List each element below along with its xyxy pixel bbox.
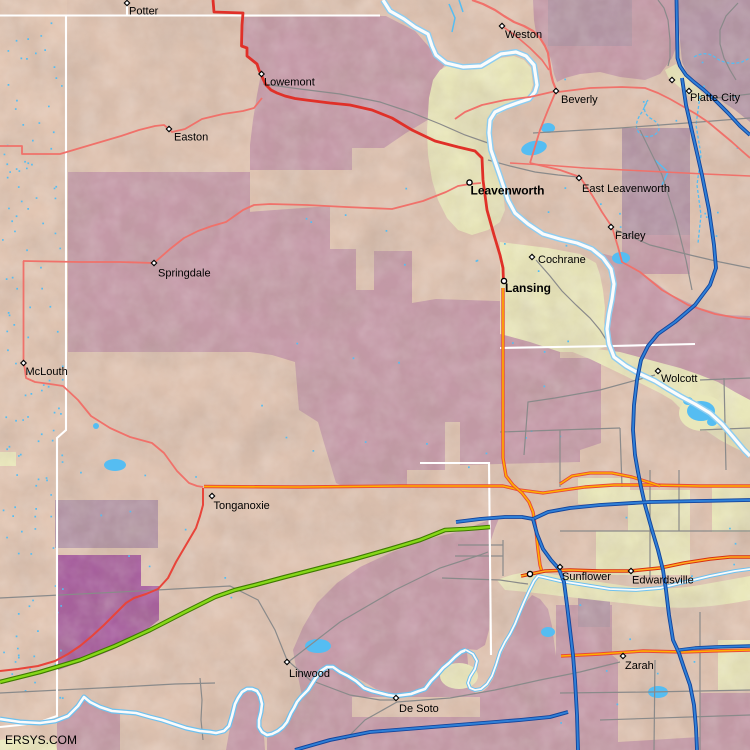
svg-text:Edwardsville: Edwardsville xyxy=(632,575,694,587)
svg-text:De Soto: De Soto xyxy=(399,703,439,715)
svg-text:ERSYS.COM: ERSYS.COM xyxy=(5,733,77,747)
svg-text:Springdale: Springdale xyxy=(158,268,211,280)
svg-text:Sunflower: Sunflower xyxy=(562,571,611,583)
svg-text:Lowemont: Lowemont xyxy=(264,77,315,89)
svg-text:Linwood: Linwood xyxy=(289,668,330,680)
svg-text:Farley: Farley xyxy=(615,230,646,242)
svg-text:McLouth: McLouth xyxy=(26,366,68,378)
svg-text:Potter: Potter xyxy=(129,6,159,18)
svg-text:Cochrane: Cochrane xyxy=(538,254,586,266)
svg-text:East Leavenworth: East Leavenworth xyxy=(582,183,670,195)
svg-text:Tonganoxie: Tonganoxie xyxy=(214,500,270,512)
svg-text:Leavenworth: Leavenworth xyxy=(471,184,545,198)
svg-text:Lansing: Lansing xyxy=(505,281,551,295)
svg-text:Wolcott: Wolcott xyxy=(661,373,697,385)
svg-text:Zarah: Zarah xyxy=(625,660,654,672)
svg-text:Beverly: Beverly xyxy=(561,94,598,106)
svg-text:Platte City: Platte City xyxy=(690,92,741,104)
svg-text:Easton: Easton xyxy=(174,132,208,144)
svg-text:Weston: Weston xyxy=(505,29,542,41)
